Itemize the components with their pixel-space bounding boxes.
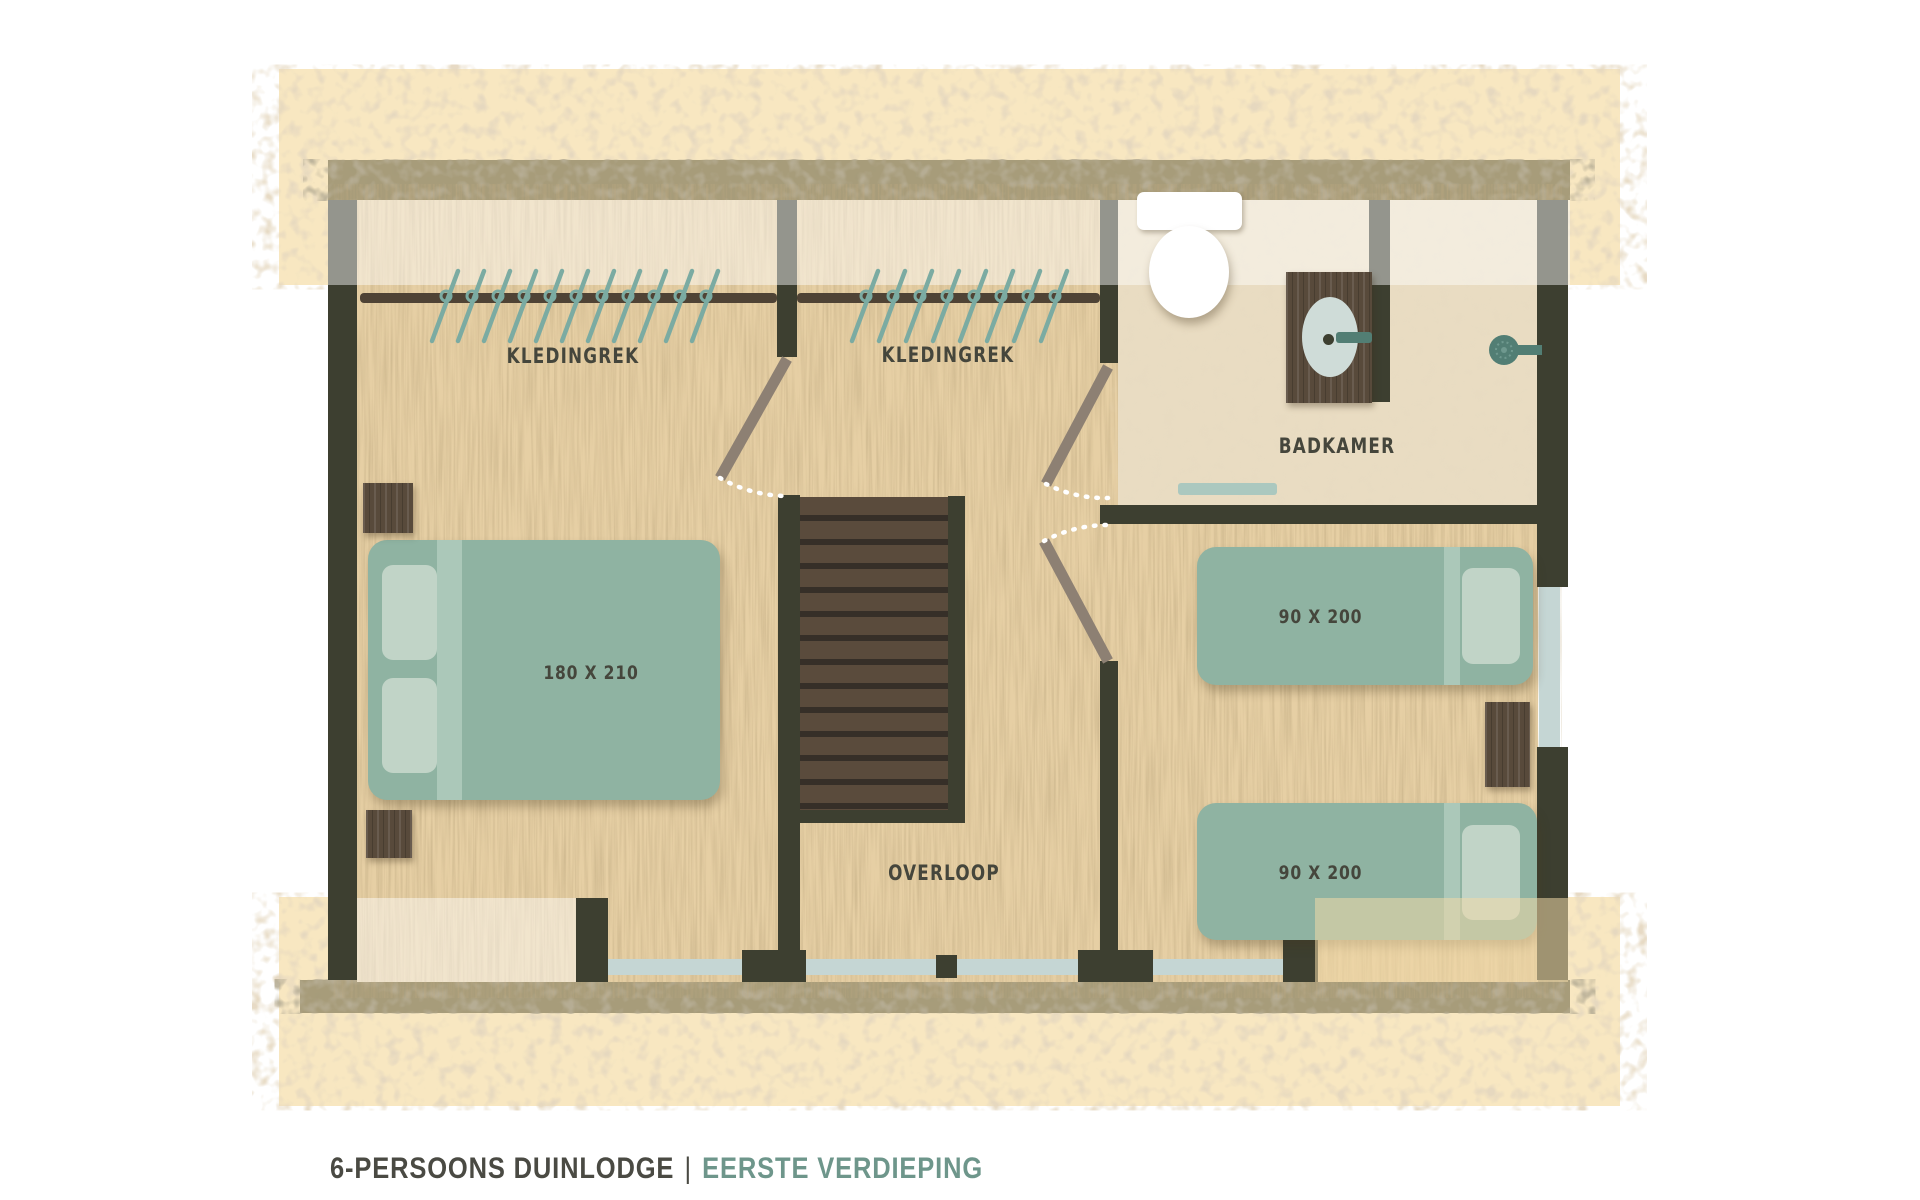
window-icon — [957, 959, 1078, 975]
window-icon — [806, 959, 936, 975]
double-bed-size-label: 180 X 210 — [485, 662, 697, 684]
window-icon — [1539, 587, 1560, 747]
caption-subtitle: EERSTE VERDIEPING — [702, 1152, 983, 1185]
caption: 6-PERSOONS DUINLODGE|EERSTE VERDIEPING — [330, 1152, 983, 1186]
blanket-fold — [437, 540, 462, 800]
room-label-closet-right: KLEDINGREK — [860, 343, 1036, 367]
wall-pillar-left — [576, 898, 608, 982]
wall-left — [328, 200, 357, 980]
shower-head-icon — [1489, 335, 1542, 365]
stairs-bottom-edge — [800, 810, 965, 823]
door-swing-arc — [1044, 525, 1108, 541]
drain-dot — [1323, 334, 1334, 345]
wall-pillar-landing-base — [1078, 950, 1153, 982]
door-swing-arc — [1046, 484, 1108, 498]
clothes-rail-left — [360, 293, 777, 303]
faucet-icon — [1336, 332, 1372, 343]
floorplan-page: 180 X 210 90 X 200 90 X 200 — [0, 0, 1920, 1200]
pillow — [382, 565, 437, 660]
sink-icon — [1286, 272, 1372, 403]
stairs-stringer-right — [948, 496, 965, 823]
room-label-bathroom: BADKAMER — [1249, 434, 1425, 458]
window-mullion — [936, 955, 957, 978]
wall-band-top — [328, 160, 1570, 200]
clothes-rail-right — [797, 293, 1100, 303]
window-icon — [1153, 959, 1283, 975]
toilet-icon — [1149, 226, 1229, 318]
caption-separator: | — [674, 1152, 702, 1185]
wall-bathroom-bottom — [1100, 505, 1538, 524]
double-bed: 180 X 210 — [368, 540, 720, 800]
door-swing-icon — [720, 359, 787, 478]
bath-mat — [1178, 483, 1277, 495]
stairs-icon — [800, 497, 948, 810]
wall-stairs-left — [778, 495, 800, 950]
wall-band-bottom — [300, 980, 1570, 1013]
roof-slope-overlay-top — [328, 200, 1570, 285]
pillow — [382, 678, 437, 773]
blanket-fold — [1444, 547, 1460, 685]
window-icon — [608, 959, 742, 975]
room-label-landing: OVERLOOP — [856, 861, 1032, 885]
door-swing-icon — [1046, 367, 1108, 484]
door-swing-icon — [1044, 541, 1108, 661]
nightstand — [1485, 702, 1530, 787]
single-bed-top-size-label: 90 X 200 — [1219, 606, 1422, 628]
toilet-icon — [1137, 192, 1242, 230]
wall-landing-divider — [1100, 661, 1118, 950]
nightstand — [366, 810, 412, 858]
room-label-closet-left: KLEDINGREK — [485, 344, 661, 368]
door-swing-arc — [720, 478, 787, 496]
pillow — [1462, 568, 1520, 664]
caption-title: 6-PERSOONS DUINLODGE — [330, 1152, 674, 1185]
single-bed-bottom-size-label: 90 X 200 — [1219, 862, 1422, 884]
roof-slope-overlay-bottom-left — [357, 898, 576, 982]
nightstand — [363, 483, 413, 533]
wall-pillar-stairs-base — [742, 950, 806, 982]
single-bed-top: 90 X 200 — [1197, 547, 1533, 685]
sand-fade-overlay-bottom-right — [1315, 898, 1568, 982]
